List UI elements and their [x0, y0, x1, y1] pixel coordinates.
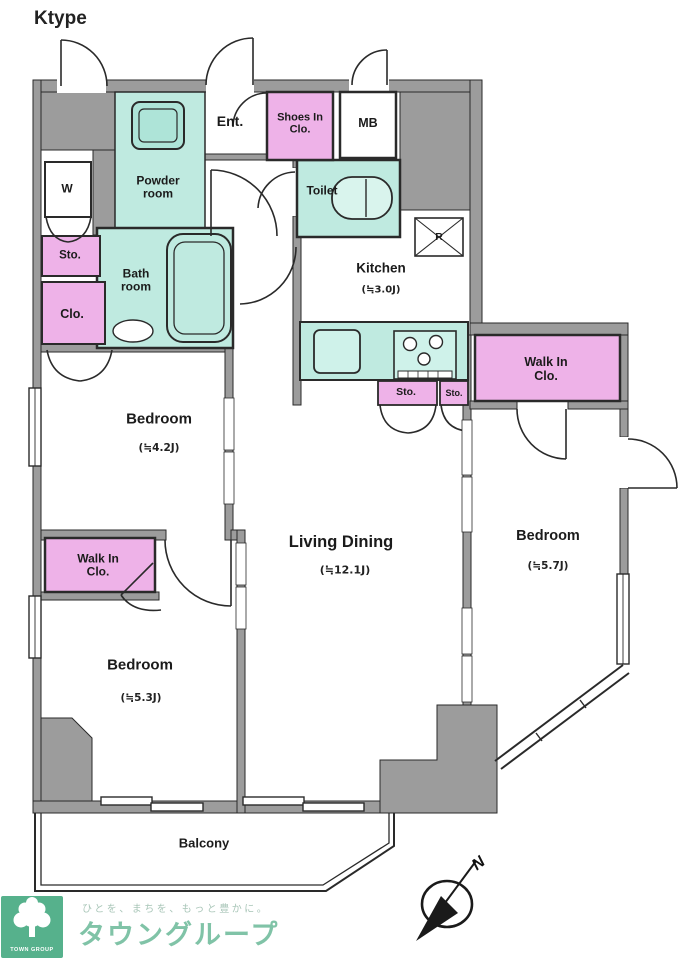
toilet-door-arc — [258, 172, 295, 208]
powder-door-arc — [240, 247, 296, 304]
wall-right-b — [620, 488, 628, 576]
gap-right-door — [619, 437, 629, 488]
burner-1 — [404, 338, 417, 351]
sto-kitchen-door-a — [380, 405, 408, 433]
compass — [416, 861, 476, 941]
bath-door-oval — [113, 320, 153, 342]
room-size-bedroom-right: (≒5.7J) — [528, 560, 569, 572]
closet-fold-door-a — [47, 350, 80, 381]
window-bottom-4 — [303, 803, 364, 811]
bathtub — [167, 234, 231, 342]
wall-wic-right-top — [470, 323, 628, 335]
closet-fold-door-b — [80, 350, 112, 381]
burner-3 — [418, 353, 430, 365]
window-diagonal-inner — [501, 673, 629, 769]
plan-type-label: Ktype — [34, 8, 87, 30]
ent-door-arc — [206, 38, 253, 85]
logo-tree-trunk — [29, 924, 35, 937]
room-label-bedroom-right: Bedroom — [516, 528, 580, 544]
room-label-shoes-in-closet: Shoes In Clo. — [272, 112, 328, 137]
room-label-storage-kitchen-left: Sto. — [396, 387, 416, 399]
room-label-balcony: Balcony — [179, 837, 230, 852]
floor-plan-drawing — [0, 0, 700, 960]
wall-washer-sep — [93, 150, 115, 235]
room-size-kitchen: (≒3.0J) — [362, 285, 401, 296]
floorplan-page: Ktype Ent. Shoes In Clo. MB Powder room … — [0, 0, 700, 960]
wic-right-door-arc — [517, 409, 566, 459]
room-label-bedroom-upper-left: Bedroom — [126, 412, 192, 429]
toilet-bowl — [332, 177, 392, 219]
balcony-outline — [35, 813, 394, 891]
room-size-bedroom-upper-left: (≒4.2J) — [139, 442, 180, 454]
room-label-kitchen: Kitchen — [356, 260, 406, 275]
sliding-panel-b1-a — [224, 398, 234, 450]
room-label-powder-room: Powder room — [128, 175, 188, 202]
room-label-bedroom-lower-left: Bedroom — [107, 658, 173, 675]
sliding-panel-ld-a — [462, 420, 472, 475]
room-label-bath-room: Bath room — [112, 268, 160, 295]
sliding-panel-ld-b — [462, 477, 472, 532]
wall-upper-right — [470, 80, 482, 335]
window-bottom-1 — [101, 797, 152, 805]
room-label-closet-hall: Clo. — [60, 307, 84, 321]
kitchen-sink — [314, 330, 360, 373]
sliding-panel-b2-b — [236, 587, 246, 629]
gap-ktype-door — [57, 79, 106, 93]
burner-2 — [430, 336, 443, 349]
sliding-panel-b1-b — [224, 452, 234, 504]
room-label-ent: Ent. — [217, 114, 243, 130]
logo-mark-text: TOWN GROUP — [10, 947, 53, 953]
hall-door-arc — [211, 170, 277, 236]
stove-grill — [398, 371, 452, 378]
gap-ent-door — [206, 79, 254, 93]
window-bottom-2 — [151, 803, 203, 811]
window-bottom-3 — [243, 797, 304, 805]
label-refrigerator: R — [435, 232, 443, 244]
room-label-living-dining: Living Dining — [289, 533, 394, 551]
room-size-living-dining: (≒12.1J) — [320, 564, 371, 577]
sliding-panel-ld-c — [462, 608, 472, 654]
room-label-walk-in-closet-right: Walk In Clo. — [513, 355, 579, 383]
room-label-storage-kitchen-right: Sto. — [446, 388, 463, 398]
balcony-outer — [35, 813, 394, 891]
room-size-bedroom-lower-left: (≒5.3J) — [121, 692, 162, 704]
room-label-toilet: Toilet — [306, 184, 337, 197]
room-label-storage-hall: Sto. — [59, 250, 81, 263]
room-label-washer: W — [61, 182, 72, 195]
room-label-walk-in-closet-left: Walk In Clo. — [68, 553, 128, 580]
sliding-panel-ld-d — [462, 656, 472, 702]
sto-kitchen-door-b — [408, 405, 436, 433]
logo-tree-foliage-6 — [26, 897, 38, 909]
sliding-panel-b2-a — [236, 543, 246, 585]
column-bottom-left — [41, 718, 92, 801]
bedroom-right-ext-door-arc — [628, 439, 677, 488]
column-bottom-right — [380, 705, 497, 813]
wall-ent-step — [205, 154, 267, 160]
window-diagonal-outer — [495, 665, 623, 761]
column-top-left — [41, 92, 115, 150]
column-top-right — [400, 92, 470, 210]
footer-brand: タウングループ — [78, 913, 279, 952]
bedroom2-door-arc — [165, 540, 231, 606]
room-label-meter-box: MB — [358, 116, 377, 130]
